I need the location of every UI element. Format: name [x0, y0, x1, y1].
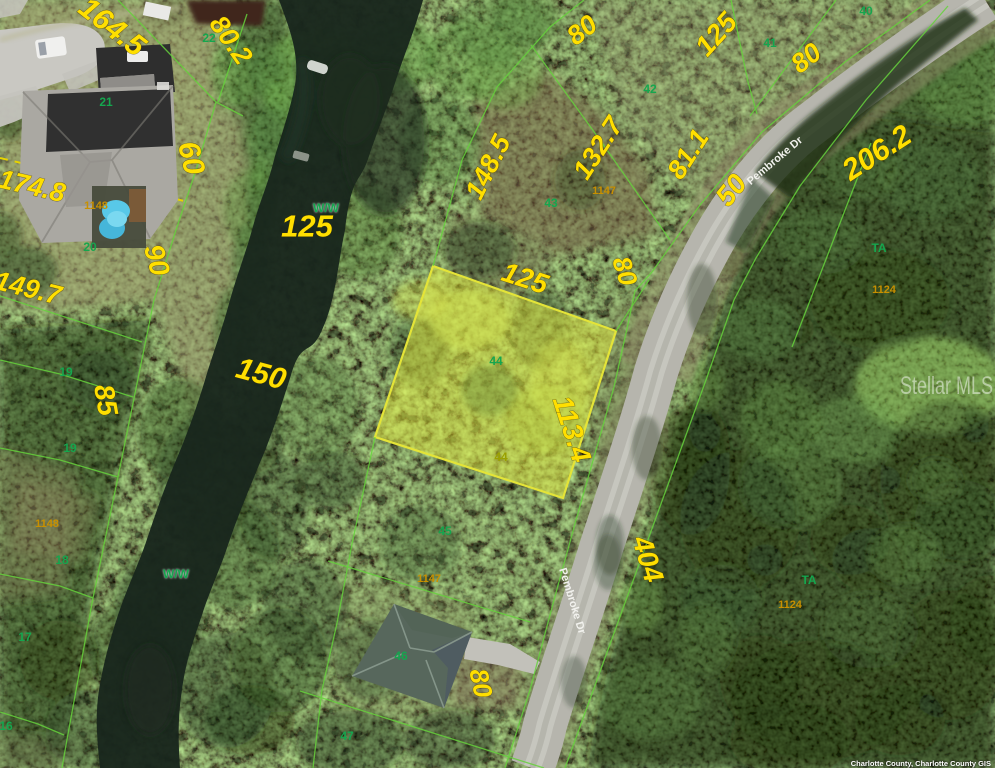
svg-text:16: 16	[0, 719, 13, 733]
svg-text:21: 21	[99, 95, 113, 109]
svg-text:41: 41	[763, 36, 777, 50]
svg-text:1147: 1147	[592, 185, 616, 197]
svg-text:W/W: W/W	[163, 567, 190, 581]
svg-text:40: 40	[859, 4, 873, 18]
svg-text:1124: 1124	[872, 284, 897, 296]
svg-text:44: 44	[489, 354, 503, 368]
svg-text:1124: 1124	[778, 599, 803, 611]
svg-text:22: 22	[202, 31, 216, 45]
svg-text:18: 18	[55, 553, 69, 567]
svg-text:19: 19	[63, 441, 77, 455]
svg-text:TA: TA	[801, 573, 816, 587]
svg-text:42: 42	[643, 82, 657, 96]
svg-text:1148: 1148	[35, 518, 59, 530]
svg-text:17: 17	[18, 630, 32, 644]
svg-text:Charlotte County, Charlotte Co: Charlotte County, Charlotte County GIS	[851, 759, 991, 768]
svg-text:43: 43	[544, 196, 558, 210]
svg-text:45: 45	[438, 524, 452, 538]
svg-text:46: 46	[394, 649, 408, 663]
svg-text:19: 19	[59, 365, 73, 379]
svg-text:47: 47	[340, 729, 354, 743]
svg-text:1147: 1147	[417, 573, 441, 585]
svg-text:20: 20	[83, 240, 97, 254]
svg-text:W/W: W/W	[313, 201, 340, 215]
svg-text:TA: TA	[871, 241, 886, 255]
svg-text:Stellar MLS: Stellar MLS	[900, 372, 993, 400]
svg-text:85: 85	[88, 382, 124, 418]
svg-text:44: 44	[494, 450, 508, 464]
svg-text:1148: 1148	[84, 200, 108, 212]
